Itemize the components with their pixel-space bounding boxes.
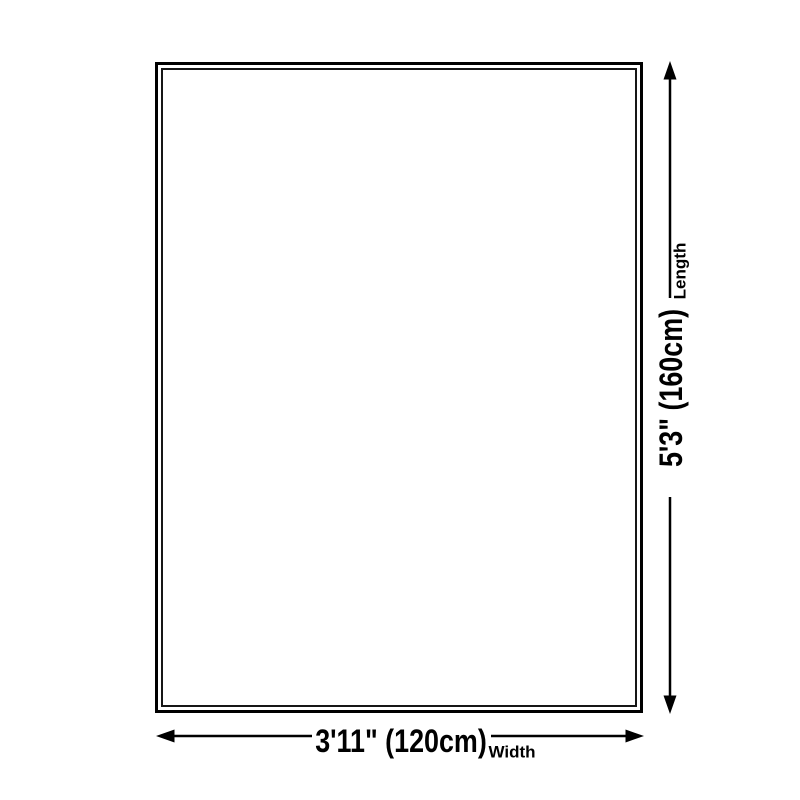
rug-inner-outline [161,68,637,707]
length-axis-label: Length [672,243,689,300]
product-dimension-diagram: 5'3" (160cm) Length 3'11" (120cm) Width [0,0,800,800]
length-dimension-value: 5'3" (160cm) [655,309,687,467]
length-arrow-down-icon [664,497,677,714]
rug-outline [155,62,643,713]
width-arrow-right-icon [491,730,644,743]
width-axis-label: Width [488,744,535,761]
width-dimension-value: 3'11" (120cm) [315,725,487,757]
width-arrow-left-icon [156,730,312,743]
